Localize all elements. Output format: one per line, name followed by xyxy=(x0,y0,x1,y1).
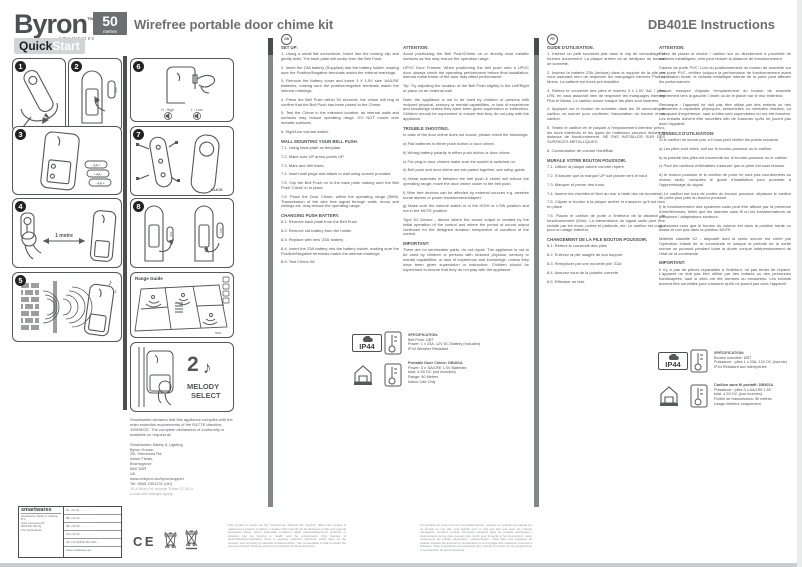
ip44-badge: IP44 xyxy=(352,334,382,352)
instruction-text: 8.5. Effectuer un test. xyxy=(547,280,665,285)
instruction-text: Si le carillon ne sonne pas, s'il vous p… xyxy=(659,138,791,143)
spec-chime-en: Portable Door Chime: DB401APower: 3 x 'A… xyxy=(408,361,530,385)
step-number: 2 xyxy=(71,61,82,72)
range-guide-diagram: Range Guide 50M xyxy=(130,272,234,338)
text-line: Indoor Use Only xyxy=(408,380,530,385)
model-title: DB401E Instructions xyxy=(648,17,775,32)
byron-logo: Byron™ smartwares xyxy=(14,8,95,42)
text-line: BE +32 (0)· ··· ·· ·· xyxy=(64,515,121,523)
quickstart-start: Start xyxy=(52,39,79,53)
instruction-text: 8.4. Assurez vous de la polarité correct… xyxy=(547,271,665,276)
quickstart-label: QuickStart xyxy=(14,38,85,54)
company-address: Smartwares Safety & LightingByron House,… xyxy=(130,443,234,487)
contact-card: smartwares Smartwares Safety & Lighting … xyxy=(18,506,122,558)
contact-phone-rows: NL +31 (0)·· ··· ····BE +32 (0)· ··· ·· … xyxy=(64,507,121,557)
instruction-text: 7.6. Place the Door Chime, within the op… xyxy=(281,195,399,209)
battery-23a-label: 23A xyxy=(169,232,173,237)
click-label: CLICK xyxy=(211,188,223,192)
instruction-text: 5. Test the Chime in the intended locati… xyxy=(281,111,399,125)
section-heading: ATTENTION: xyxy=(403,46,529,51)
instruction-text: 1. Using a small flat screwdriver, inser… xyxy=(281,52,399,62)
instruction-text: 8.3: Replace with new '23A' battery xyxy=(281,238,399,243)
step-number: 6 xyxy=(133,61,144,72)
brand-name: Byron xyxy=(14,9,87,39)
column-attention-fr: ATTENTION:Évitez de placer la cloche / c… xyxy=(659,46,791,346)
text-line: The Netherlands xyxy=(21,529,61,533)
instruction-text: f) Wire free devices can be affected by … xyxy=(403,191,529,201)
instruction-text: In case of the door chime does not sound… xyxy=(403,133,529,138)
instruction-text: 1. Insérez un petit tournevis plat dans … xyxy=(547,52,665,66)
weee-bin-underline-icon xyxy=(185,529,198,550)
instruction-text: d) Bell push and door chime are not pair… xyxy=(403,168,529,173)
section-heading: CHANGING PUSH BATTERY. xyxy=(281,214,399,219)
instruction-text: 2. Insert the 23A battery (Supplied) int… xyxy=(281,66,399,76)
thermometer-icon xyxy=(384,363,402,387)
section-heading: IMPORTANT: xyxy=(659,261,791,266)
divider-bar xyxy=(268,55,273,507)
text-line: www.smartwares.eu xyxy=(64,547,121,554)
step6-diagram: H : High L : Low xyxy=(130,58,234,122)
step-number: 7 xyxy=(133,129,144,140)
instruction-text: 7.4. Insérer les chevilles et fixer au m… xyxy=(547,192,665,197)
instruction-text: Matériel classifié K2 - dispositif dont … xyxy=(659,237,791,256)
range-caption: 50M xyxy=(215,331,221,335)
spec-chime-fr: Carillon sans fil portatif: DB401APuissa… xyxy=(714,383,796,407)
instruction-text: 5. Testez le carillon en le plaçant à l'… xyxy=(547,126,665,145)
text-line: FR +33 (0)· ·· ·· ·· ·· xyxy=(64,531,121,539)
instruction-text: 6. High/Low volume switch xyxy=(281,130,399,135)
instruction-text: 8.2. Enlevez la pile usagée de son suppo… xyxy=(547,253,665,258)
paper-edge xyxy=(797,0,802,567)
section-heading: MURALE VOTRE BOUTON POUSSOIR. xyxy=(547,159,665,164)
instruction-text: 8.2: Remove old battery from the holder xyxy=(281,229,399,234)
melody-select-label: MELODY xyxy=(187,382,219,391)
instruction-text: b) la polarité des piles est incorrecte … xyxy=(659,156,791,161)
instruction-text: c) Pour les carillons enfichables s'assu… xyxy=(659,164,791,169)
melody-select-drawing: 2 ♪ MELODY SELECT xyxy=(131,343,233,411)
indoor-use-icon xyxy=(352,363,374,385)
instruction-text: 4. Press the Bell Push within 30 seconds… xyxy=(281,98,399,108)
column-attention-en: ATTENTION:Avoid positioning the Bell Pus… xyxy=(403,46,529,330)
gb-language-icon: GB xyxy=(281,34,292,45)
instruction-text: 7.5. Clipser le bouton à la plaque arriè… xyxy=(547,200,665,210)
section-heading: IMPORTANT: xyxy=(403,242,529,247)
indoor-use-icon xyxy=(658,384,680,406)
instruction-text: e) Le carillon est hors de portée du bou… xyxy=(659,192,791,202)
instruction-text: e) Metal materials in between the bell p… xyxy=(403,177,529,187)
instruction-text: c) For plug-in door chimes make sure the… xyxy=(403,160,529,165)
contact-card-left: smartwares Smartwares Safety & Lighting … xyxy=(19,507,64,557)
instruction-text: 7.1. Utiliser la plaque arrière comme re… xyxy=(547,165,665,170)
support-hours: 10-4 Mon-Fri, except Thurs 12:30-4Local … xyxy=(130,487,234,497)
instruction-text: Note: the appliance is not to be used by… xyxy=(403,98,529,122)
battery-change-drawing: 23A 23A xyxy=(131,199,233,267)
instruction-text: 2. Insérez la batterie 23A (incluse) dan… xyxy=(547,71,665,85)
instruction-text: 7.2. Make sure UP arrow points UP. xyxy=(281,155,399,160)
instruction-text: 7.4. Insert wall plugs and attach to wal… xyxy=(281,172,399,177)
ip44-label: IP44 xyxy=(354,342,380,351)
instruction-text: 7.6. Placez le carillon de porte à l'int… xyxy=(547,214,665,233)
text-line: Usage intérieur uniquement xyxy=(714,402,796,407)
step4-diagram: 1 metre xyxy=(12,198,122,268)
melody-select-label: SELECT xyxy=(191,391,221,400)
text-line: UK +44 (0)845 230 1231 xyxy=(64,539,121,547)
instruction-text: g) Make sure the volume switch is in the… xyxy=(403,204,529,214)
instruction-text: There are no serviceable parts, do not r… xyxy=(403,248,529,272)
battery-23a-label: 23A xyxy=(114,87,118,94)
text-line: Local call charges apply xyxy=(130,492,234,497)
instruction-text: UPVC Door Frames: When positioning the b… xyxy=(403,66,529,80)
instruction-text: 8.4: Insert the 23A battery into the bat… xyxy=(281,247,399,257)
section-heading: ATTENTION: xyxy=(659,46,791,51)
battery-23a-label: 23A xyxy=(219,228,223,233)
step-number: 5 xyxy=(15,275,26,286)
instruction-text: 3. Retirez le couvercle des piles et ins… xyxy=(547,89,665,103)
text-line: DE +49 (0)··· ······· xyxy=(64,523,121,531)
section-heading: SET UP: xyxy=(281,46,399,51)
ip44-label: IP44 xyxy=(660,360,686,369)
disposal-notice-fr: Ce symbole est connu comme 'la poubelle … xyxy=(420,524,532,552)
melody-number: 2 xyxy=(187,353,199,376)
fr-language-icon: FR xyxy=(547,34,558,45)
instruction-text: a) Les piles sont vides, soit sur le bou… xyxy=(659,147,791,152)
instruction-text: 3. Remove the battery cover and insert 3… xyxy=(281,79,399,93)
weee-bin-icon xyxy=(164,531,177,550)
instruction-text: 4. Appuyez sur le bouton de sonnette dan… xyxy=(547,107,665,121)
instruction-text: Remarque : l'appareil ne doit pas être u… xyxy=(659,103,791,127)
pairing-distance-drawing: 1 metre xyxy=(13,199,121,267)
signal-through-wall-drawing: ♪ ♪ xyxy=(13,273,121,341)
aa-battery-label: - AA + xyxy=(91,164,100,168)
instruction-text: 6. Commutateur de volume Haut/Bas xyxy=(547,149,665,154)
aa-battery-label: - AA + xyxy=(95,182,104,186)
instruction-text: b) Wrong battery polarity in either push… xyxy=(403,151,529,156)
music-note-icon: ♪ xyxy=(108,278,112,287)
step5-diagram: ♪ ♪ xyxy=(12,272,122,342)
step7-diagram: CLICK xyxy=(130,126,234,196)
instruction-text: Type K2 Device - device where the sound … xyxy=(403,218,529,237)
instruction-text: d) le bouton poussoir et le carillon de … xyxy=(659,173,791,187)
smartwares-logo: smartwares xyxy=(21,509,61,514)
instruction-text: 7.5. Clip the Bell Push on to the back p… xyxy=(281,181,399,191)
text-line: IP44 Weather Resistant xyxy=(408,347,530,352)
aa-battery-label: + AA - xyxy=(93,173,102,177)
instruction-text: Tip: Try adjusting the location of the B… xyxy=(403,84,529,94)
compliance-statement: Smartwares declares that this appliance … xyxy=(130,418,234,497)
compliance-paragraph: Smartwares declares that this appliance … xyxy=(130,418,234,438)
page-title: Wirefree portable door chime kit xyxy=(134,17,333,32)
volume-switch-drawing: H : High L : Low xyxy=(131,59,233,121)
instruction-text: 7.1. Using back plate as template. xyxy=(281,146,399,151)
instruction-text: 7.3. Mark and drill holes. xyxy=(281,164,399,169)
instruction-text: 8.5: Test Chime Kit xyxy=(281,260,399,265)
instruction-text: 8.1: Remove back plate from the Bell Pus… xyxy=(281,220,399,225)
instruction-text: a) Flat batteries in either push button … xyxy=(403,142,529,147)
instruction-text: 8.1. Retirez le couvercle des piles xyxy=(547,244,665,249)
text-line: NL +31 (0)·· ··· ···· xyxy=(64,507,121,515)
instruction-text: Évitez de placer la cloche / carillon su… xyxy=(659,52,791,62)
section-heading: TROUBLE SHOOTING. xyxy=(403,127,529,132)
ip44-badge: IP44 xyxy=(658,352,688,370)
spec-bellpush-en: SPECIFICATION:Bell Push: DBTPower: 1 x 2… xyxy=(408,333,530,352)
instruction-text: Il n'y a pas de pièces réparables à l'in… xyxy=(659,268,791,287)
contact-address: Smartwares Safety & Lighting B.V.Jules V… xyxy=(21,515,61,533)
range-50m-badge: 50 metres xyxy=(93,12,127,35)
one-metre-label: 1 metre xyxy=(55,233,73,239)
step-number: 4 xyxy=(15,201,26,212)
instruction-text: 7.2. S'assurer que la marque UP soit pla… xyxy=(547,174,665,179)
paper-edge xyxy=(0,563,802,567)
wall-mount-click-drawing: CLICK xyxy=(131,127,233,195)
divider-cap xyxy=(268,38,273,55)
quickstart-quick: Quick xyxy=(19,39,52,53)
ce-mark: CE xyxy=(133,534,156,549)
instruction-text: Cadres de porte PVC: Lors du positionnem… xyxy=(659,66,791,85)
section-heading: GUIDE D'UTILISATION. xyxy=(547,46,665,51)
music-note-icon: ♪ xyxy=(114,289,117,295)
divider-bar xyxy=(534,55,539,507)
instruction-text: 8.3. Remplacer par une nouvelle pile '23… xyxy=(547,262,665,267)
step-number: 1 xyxy=(15,61,26,72)
column-guide-fr: GUIDE D'UTILISATION.1. Insérez un petit … xyxy=(547,46,665,390)
thermometer-icon xyxy=(384,331,402,355)
divider-cap xyxy=(534,38,539,55)
instruction-text: f) le fonctionnement des systèmes radio … xyxy=(659,205,791,219)
section-heading: CHANGEMENT DE LA PILE BOUTON POUSSOIR. xyxy=(547,238,665,243)
instruction-text: 7.3. Marquer et percer des trous. xyxy=(547,183,665,188)
volume-low-label: L : Low xyxy=(191,108,203,112)
melody-select-diagram: 2 ♪ MELODY SELECT xyxy=(130,342,234,412)
thermometer-icon xyxy=(690,384,708,408)
divider-bar xyxy=(123,56,127,410)
column-setup-en: SET UP:1. Using a small flat screwdriver… xyxy=(281,46,399,346)
step-number: 3 xyxy=(15,129,26,140)
badge-unit: metres xyxy=(93,29,127,34)
section-heading: CONSEILS D'UTILISATION: xyxy=(659,132,791,137)
spec-bellpush-fr: SPÉCIFICATION:Bouton sonnette: DBTPuissa… xyxy=(714,351,796,370)
text-line: IP44 Résistant aux intempéries xyxy=(714,365,796,370)
badge-value: 50 xyxy=(93,14,127,29)
floorplan-drawing: 50M xyxy=(131,273,233,337)
instruction-text: Astuce: essayez d'ajuster l'emplacement … xyxy=(659,89,791,99)
step-number: 8 xyxy=(133,201,144,212)
section-heading: WALL MOUNTING YOUR BELL PUSH. xyxy=(281,140,399,145)
thermometer-icon xyxy=(690,349,708,373)
instruction-text: Avoid positioning the Bell Push/Chime on… xyxy=(403,52,529,62)
volume-high-label: H : High xyxy=(161,108,174,112)
step8-diagram: 23A 23A xyxy=(130,198,234,268)
instruction-leaflet: Byron™ smartwares 50 metres Wirefree por… xyxy=(0,0,802,567)
step3-diagram: - AA + + AA - - AA + xyxy=(12,126,122,195)
music-note-icon: ♪ xyxy=(203,358,212,377)
chime-batteries-drawing: - AA + + AA - - AA + xyxy=(13,127,121,194)
disposal-notice-en: This symbol is known as the 'Crossed-out… xyxy=(228,524,346,549)
instruction-text: g) Assurez-vous que le bouton du volume … xyxy=(659,224,791,234)
